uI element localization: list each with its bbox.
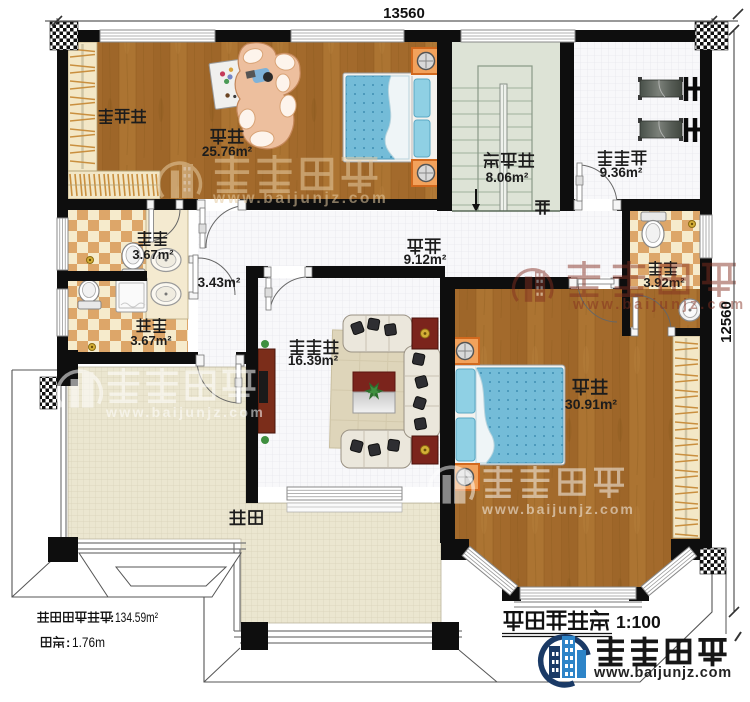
svg-text::: :: [66, 635, 70, 650]
svg-text:www.baijunjz.com: www.baijunjz.com: [481, 501, 635, 517]
svg-text::: :: [110, 610, 114, 625]
svg-text:25.76m²: 25.76m²: [202, 144, 253, 159]
svg-text:9.12m²: 9.12m²: [404, 252, 447, 267]
svg-text:www.baijunjz.com: www.baijunjz.com: [212, 190, 388, 207]
svg-text:1:100: 1:100: [616, 612, 661, 632]
svg-text:www.baijunjz.com: www.baijunjz.com: [105, 404, 265, 420]
svg-text:3.43m²: 3.43m²: [198, 275, 241, 290]
svg-text:8.06m²: 8.06m²: [486, 170, 529, 185]
svg-text:30.91m²: 30.91m²: [565, 396, 617, 412]
svg-text:3.67m²: 3.67m²: [130, 333, 172, 348]
svg-text:13560: 13560: [383, 5, 425, 22]
svg-text:9.36m²: 9.36m²: [600, 165, 643, 180]
svg-text:3.67m²: 3.67m²: [132, 247, 174, 262]
svg-text:1.76m: 1.76m: [72, 635, 105, 650]
svg-text:16.39m²: 16.39m²: [288, 353, 339, 368]
svg-text:12560: 12560: [718, 301, 735, 343]
svg-text:134.59m²: 134.59m²: [115, 610, 158, 625]
svg-text:www.baijunjz.com: www.baijunjz.com: [593, 665, 732, 681]
